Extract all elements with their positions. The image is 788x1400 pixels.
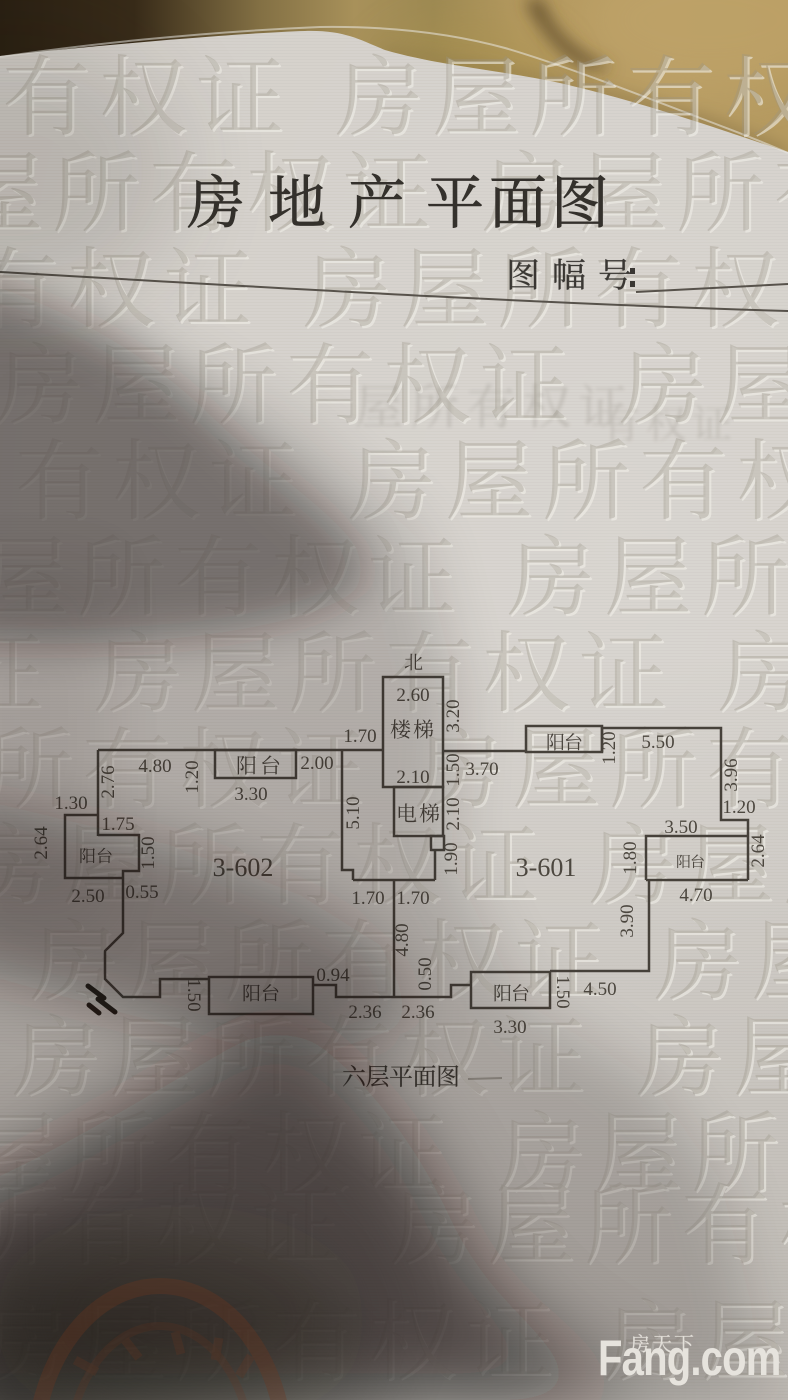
svg-text:2.64: 2.64 [748,834,769,868]
svg-text:4.70: 4.70 [679,885,712,906]
svg-text:1.50: 1.50 [552,975,573,1008]
svg-text:Fang.com: Fang.com [598,1330,780,1386]
svg-text:1.20: 1.20 [722,797,755,818]
svg-text:1.80: 1.80 [620,841,641,874]
svg-text:3.90: 3.90 [617,904,638,937]
svg-text:1.20: 1.20 [599,731,620,764]
svg-text:3.96: 3.96 [721,758,742,791]
svg-text:5.50: 5.50 [641,732,674,753]
svg-text:4.50: 4.50 [583,979,616,1000]
svg-text:3.50: 3.50 [664,817,697,838]
svg-text:3.70: 3.70 [465,759,498,780]
svg-text:3-601: 3-601 [516,853,577,882]
